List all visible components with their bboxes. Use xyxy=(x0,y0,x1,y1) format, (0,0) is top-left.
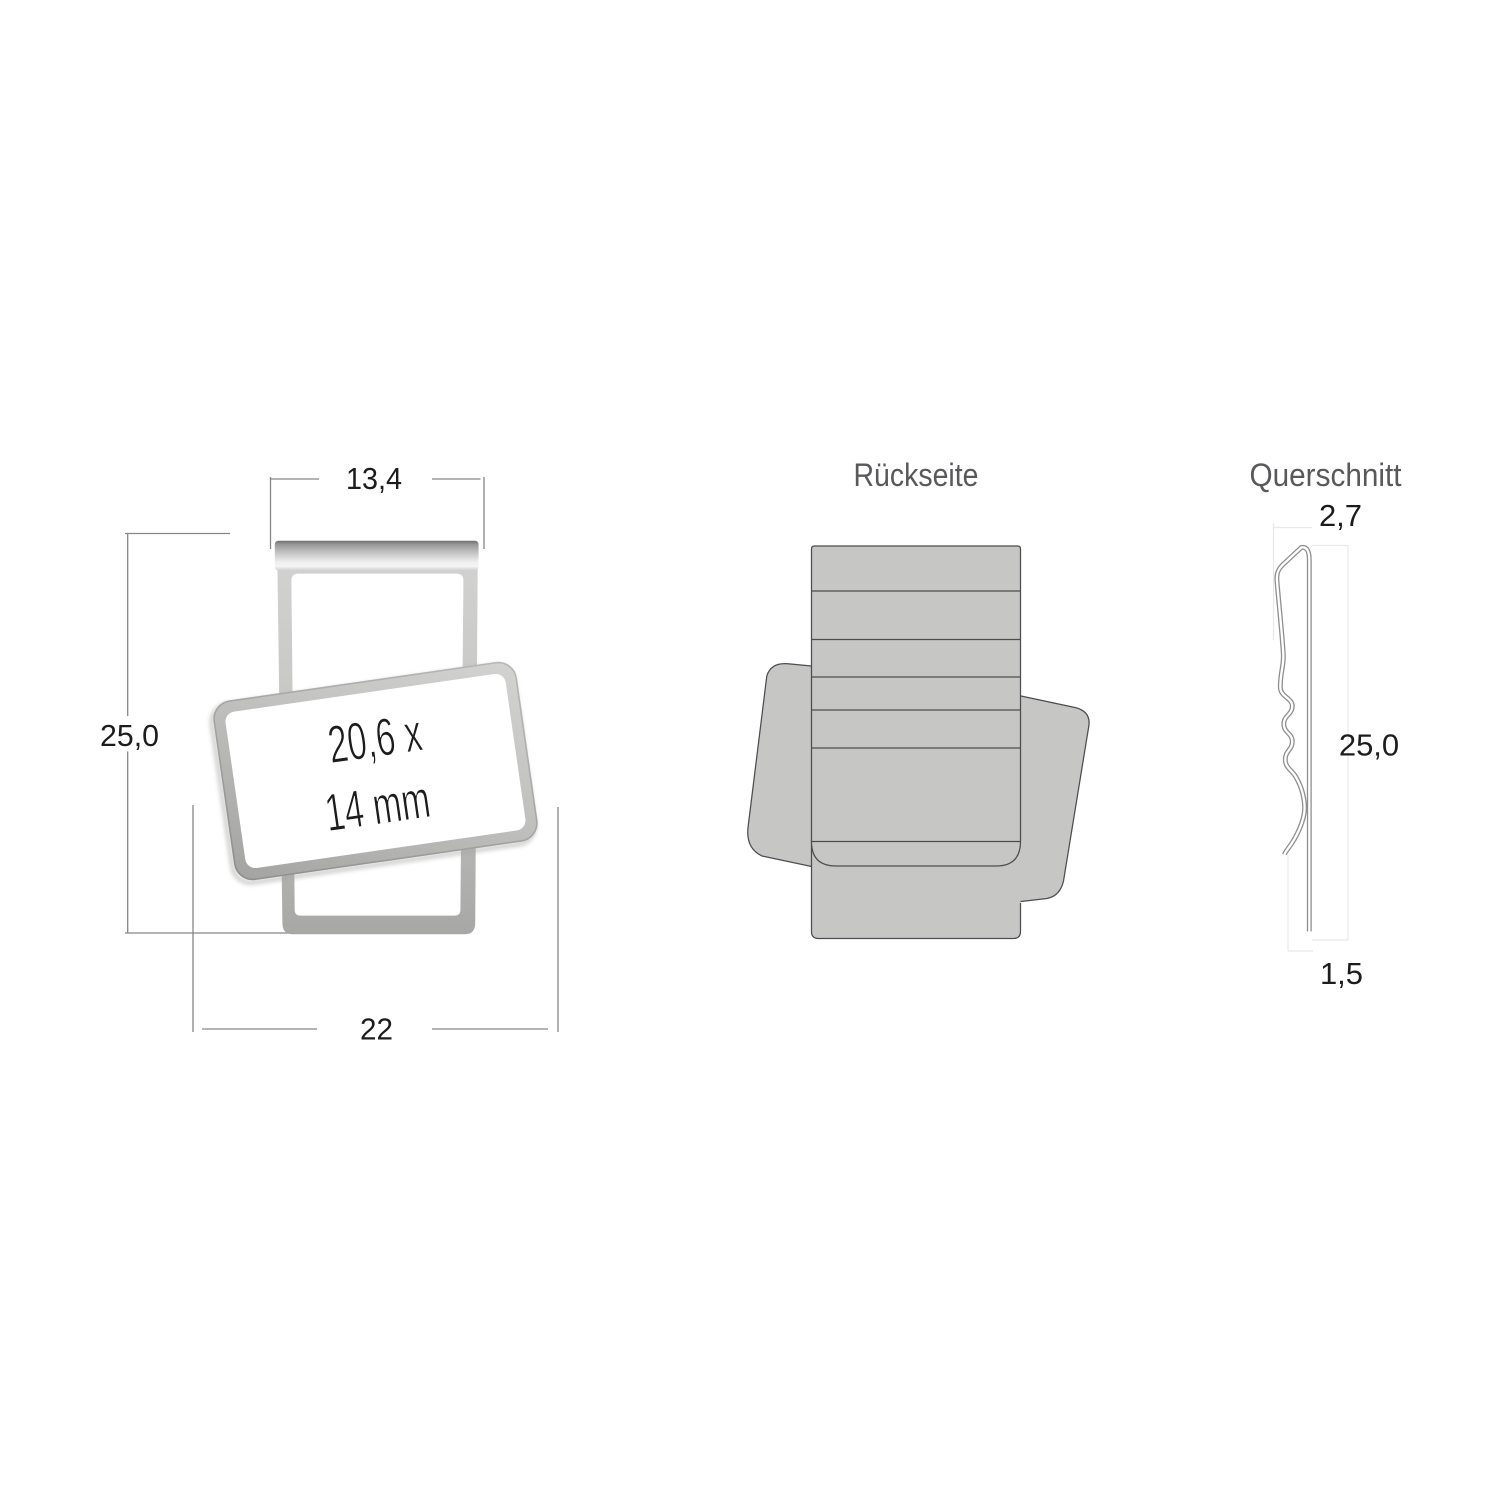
svg-text:25,0: 25,0 xyxy=(1339,728,1399,763)
svg-text:Rückseite: Rückseite xyxy=(854,457,979,493)
svg-text:Querschnitt: Querschnitt xyxy=(1250,457,1402,493)
svg-text:1,5: 1,5 xyxy=(1320,956,1363,991)
svg-text:13,4: 13,4 xyxy=(346,461,402,496)
svg-text:25,0: 25,0 xyxy=(100,718,159,753)
svg-text:2,7: 2,7 xyxy=(1319,498,1362,533)
svg-text:22: 22 xyxy=(360,1012,393,1047)
